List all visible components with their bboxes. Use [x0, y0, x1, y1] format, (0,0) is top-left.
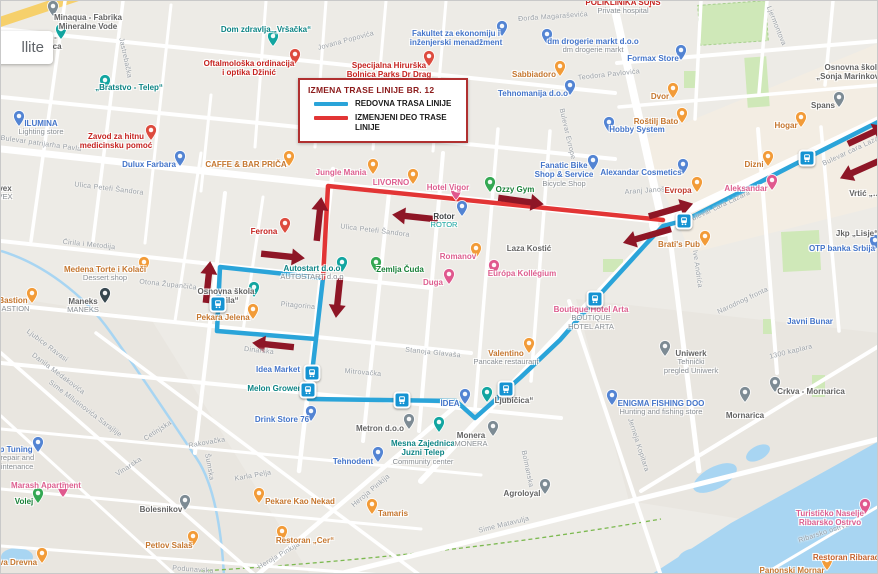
poi-restoran-cer[interactable]: Restoran „Cer“ [276, 536, 334, 545]
poi-pekare-kao-nekad[interactable]: Pekare Kao Nekad [265, 497, 335, 506]
legend-item-label: IZMENJENI DEO TRASE LINIJE [355, 113, 458, 133]
poi-metron[interactable]: Metron d.o.o [356, 424, 404, 433]
jungle-mania-pin[interactable] [367, 158, 379, 175]
poi-mz-juzni-telep[interactable]: Mesna ZajednicaJuzni TelepCommunity cent… [391, 439, 455, 467]
poi-bratis-pub[interactable]: Brati's Pub [658, 240, 700, 249]
poi-volej[interactable]: Volej [15, 497, 34, 506]
metron-pin[interactable] [403, 413, 415, 430]
bus-stop-icon[interactable] [304, 365, 321, 382]
poi-javni-bunar[interactable]: Javni Bunar [787, 317, 833, 326]
poi-tehnodent[interactable]: Tehnodent [333, 457, 373, 466]
agroloyal-pin[interactable] [539, 478, 551, 495]
mornarica-pin[interactable] [739, 386, 751, 403]
regular-route-swatch [314, 102, 348, 106]
poi-hogar[interactable]: Hogar [774, 121, 797, 130]
poi-mornarica[interactable]: Mornarica [726, 411, 764, 420]
bus-stop-icon[interactable] [210, 296, 227, 313]
ljubicica-pin[interactable] [481, 386, 493, 403]
poi-caffe-bar-prica[interactable]: CAFFE & BAR PRIČA [205, 160, 286, 169]
poi-osnovna-skola-sonja[interactable]: Osnovna škola„Sonja Marinković“ [816, 63, 878, 82]
poi-vrtic[interactable]: Vrtić „… [849, 189, 878, 198]
poi-tamaris[interactable]: Tamaris [378, 509, 408, 518]
poi-fanatic-bike[interactable]: Fanatic BikeShop & ServiceBicycle Shop [535, 161, 594, 189]
route-change-legend: IZMENA TRASE LINIJE BR. 12 REDOVNA TRASA… [298, 78, 468, 143]
poi-jkp-lisje[interactable]: Jkp „Lisje“ [836, 229, 878, 238]
poi-dvor[interactable]: Dvor [651, 92, 669, 101]
legend-item-regular-route: REDOVNA TRASA LINIJE [314, 99, 458, 109]
monera-pin[interactable] [487, 420, 499, 437]
poi-alexandar-cosmetics[interactable]: Alexandar Cosmetics [600, 168, 681, 177]
maneks-pin[interactable] [99, 287, 111, 304]
poi-valentino[interactable]: ValentinoPancake restaurant [473, 349, 538, 367]
legend-title: IZMENA TRASE LINIJE BR. 12 [308, 85, 458, 95]
bus-stop-icon[interactable] [676, 213, 693, 230]
poi-marash-apartment[interactable]: Marash Apartment [11, 481, 81, 490]
poi-evropa[interactable]: Evropa [664, 186, 691, 195]
poi-uniwerk[interactable]: UniwerkTehničkipregled Uniwerk [664, 349, 718, 376]
poi-restoran-ribarac[interactable]: Restoran Ribarac [813, 553, 878, 562]
poi-rotor[interactable]: RotorROTOR [431, 212, 458, 230]
poi-dizni[interactable]: Dizni [744, 160, 763, 169]
poi-monera[interactable]: MoneraMONERA [455, 431, 488, 449]
poi-poliklinika-suns[interactable]: POLIKLINIKA SUNSPrivate hospital [585, 0, 660, 16]
poi-bolesnikov[interactable]: Bolesnikov [140, 505, 183, 514]
poi-panonski-mornar[interactable]: Panonski Mornar [760, 566, 825, 574]
poi-zemlja-cuda[interactable]: Zemlja Čuda [376, 265, 424, 274]
tehnodent-pin[interactable] [372, 446, 384, 463]
poi-idea-market[interactable]: Idea Market [256, 365, 300, 374]
poi-oftalmoloska-dzinic[interactable]: Oftalmološka ordinacijai optika Džinić [204, 59, 295, 78]
poi-hotel-vigor[interactable]: Hotel Vigor [427, 183, 470, 192]
poi-pip-tuning[interactable]: ip Tuningr repair andaintenance [0, 445, 34, 472]
evropa-pin[interactable] [691, 176, 703, 193]
poi-otp-banka[interactable]: OTP banka Srbija [809, 244, 875, 253]
poi-idea[interactable]: IDEA [440, 399, 459, 408]
modified-route-swatch [314, 116, 348, 120]
poi-vex[interactable]: vexVEX [0, 184, 13, 202]
poi-ilumina[interactable]: ILUMINALighting store [18, 119, 63, 137]
poi-drink-store-76[interactable]: Drink Store 76 [255, 415, 309, 424]
dizni-pin[interactable] [762, 150, 774, 167]
poi-zavod-hitna-pomoc[interactable]: Zavod za hitnumedicinsku pomoć [80, 132, 152, 151]
poi-boutique-hotel-arta[interactable]: Boutique Hotel ArtaBOUTIQUEHOTEL ARTA [554, 305, 629, 332]
ferona-pin[interactable] [279, 217, 291, 234]
poi-enigma-fishing[interactable]: ENIGMA FISHING DOOHunting and fishing st… [618, 399, 705, 417]
idea-pin[interactable] [459, 388, 471, 405]
poi-romanov[interactable]: Romanov [440, 252, 476, 261]
poi-crkva-mornarica[interactable]: Crkva - Mornarica [777, 387, 845, 396]
pekare-kao-nekad-pin[interactable] [253, 487, 265, 504]
legend-item-modified-route: IZMENJENI DEO TRASE LINIJE [314, 113, 458, 133]
satellite-chip-partial[interactable]: llite [0, 31, 53, 64]
poi-formax-store[interactable]: Formax Store [627, 54, 679, 63]
poi-dm-drogerie[interactable]: dm drogerie markt d.o.odm drogerie markt [547, 37, 639, 55]
poi-europa-kollegium[interactable]: Európa Kollégium [488, 269, 556, 278]
enigma-fishing-pin[interactable] [606, 389, 618, 406]
poi-livorno[interactable]: LIVORNO [373, 178, 409, 187]
poi-sabbiadoro[interactable]: Sabbiadoro [512, 70, 556, 79]
poi-medena-torte[interactable]: Medena Torte i KolačiDessert shop [64, 265, 146, 283]
poi-turisticko-naselje[interactable]: Turističko NaseljeRibarsko Ostrvo [796, 509, 864, 528]
poi-duga[interactable]: Duga [423, 278, 443, 287]
bus-stop-icon[interactable] [799, 150, 816, 167]
poi-dulux-farbara[interactable]: Dulux Farbara [122, 160, 176, 169]
poi-spans[interactable]: Spans [811, 101, 835, 110]
mz-juzni-telep-pin[interactable] [433, 416, 445, 433]
va-drevna-pin[interactable] [36, 547, 48, 564]
poi-bratstvo-telep[interactable]: „Bratstvo - Telep“ [95, 83, 163, 92]
poi-pekara-jelena[interactable]: Pekara Jelena [196, 313, 249, 322]
bus-stop-icon[interactable] [498, 381, 515, 398]
poi-aleksandar[interactable]: Aleksandar [724, 184, 767, 193]
poi-agroloyal[interactable]: Agroloyal [504, 489, 541, 498]
aleksandar-pin[interactable] [766, 174, 778, 191]
poi-va-drevna[interactable]: va Drevna [0, 558, 37, 567]
bus-stop-icon[interactable] [394, 392, 411, 409]
bratis-pub-pin[interactable] [699, 230, 711, 247]
poi-ozzy-gym[interactable]: Ozzy Gym [496, 185, 535, 194]
poi-laza-kostic[interactable]: Laza Kostić [507, 244, 551, 253]
bus-stop-icon[interactable] [300, 382, 317, 399]
map-screenshot: Bulevar patrijarha PavlaJastrebačkaUlica… [0, 0, 878, 574]
poi-fakultet-ekonomija[interactable]: Fakultet za ekonomiju iinženjerski menad… [410, 29, 502, 48]
tamaris-pin[interactable] [366, 498, 378, 515]
poi-maneks[interactable]: ManeksMANEKS [67, 297, 99, 315]
poi-petlov-salas[interactable]: Petlov Salaš [145, 541, 192, 550]
poi-tehnomanija[interactable]: Tehnomanija d.o.o [498, 89, 568, 98]
poi-minaqua[interactable]: Minaqua - FabrikaMineralne Vode [54, 13, 122, 32]
poi-dom-zdravlja-vrsacka[interactable]: Dom zdravlja „Vršačka“ [221, 25, 311, 34]
poi-rostilj-bato[interactable]: Roštilj Bato [634, 117, 678, 126]
bus-stop-icon[interactable] [587, 291, 604, 308]
duga-pin[interactable] [443, 268, 455, 285]
poi-melon-grower[interactable]: Melon Grower [247, 384, 300, 393]
poi-autostart[interactable]: Autostart d.o.oAUTOSTART d.o.o [280, 264, 343, 282]
poi-bastion[interactable]: BastionBASTION [0, 296, 29, 314]
rotor-pin[interactable] [456, 200, 468, 217]
legend-item-label: REDOVNA TRASA LINIJE [355, 99, 451, 109]
poi-ferona[interactable]: Ferona [251, 227, 278, 236]
ozzy-gym-pin[interactable] [484, 176, 496, 193]
poi-jungle-mania[interactable]: Jungle Mania [316, 168, 367, 177]
